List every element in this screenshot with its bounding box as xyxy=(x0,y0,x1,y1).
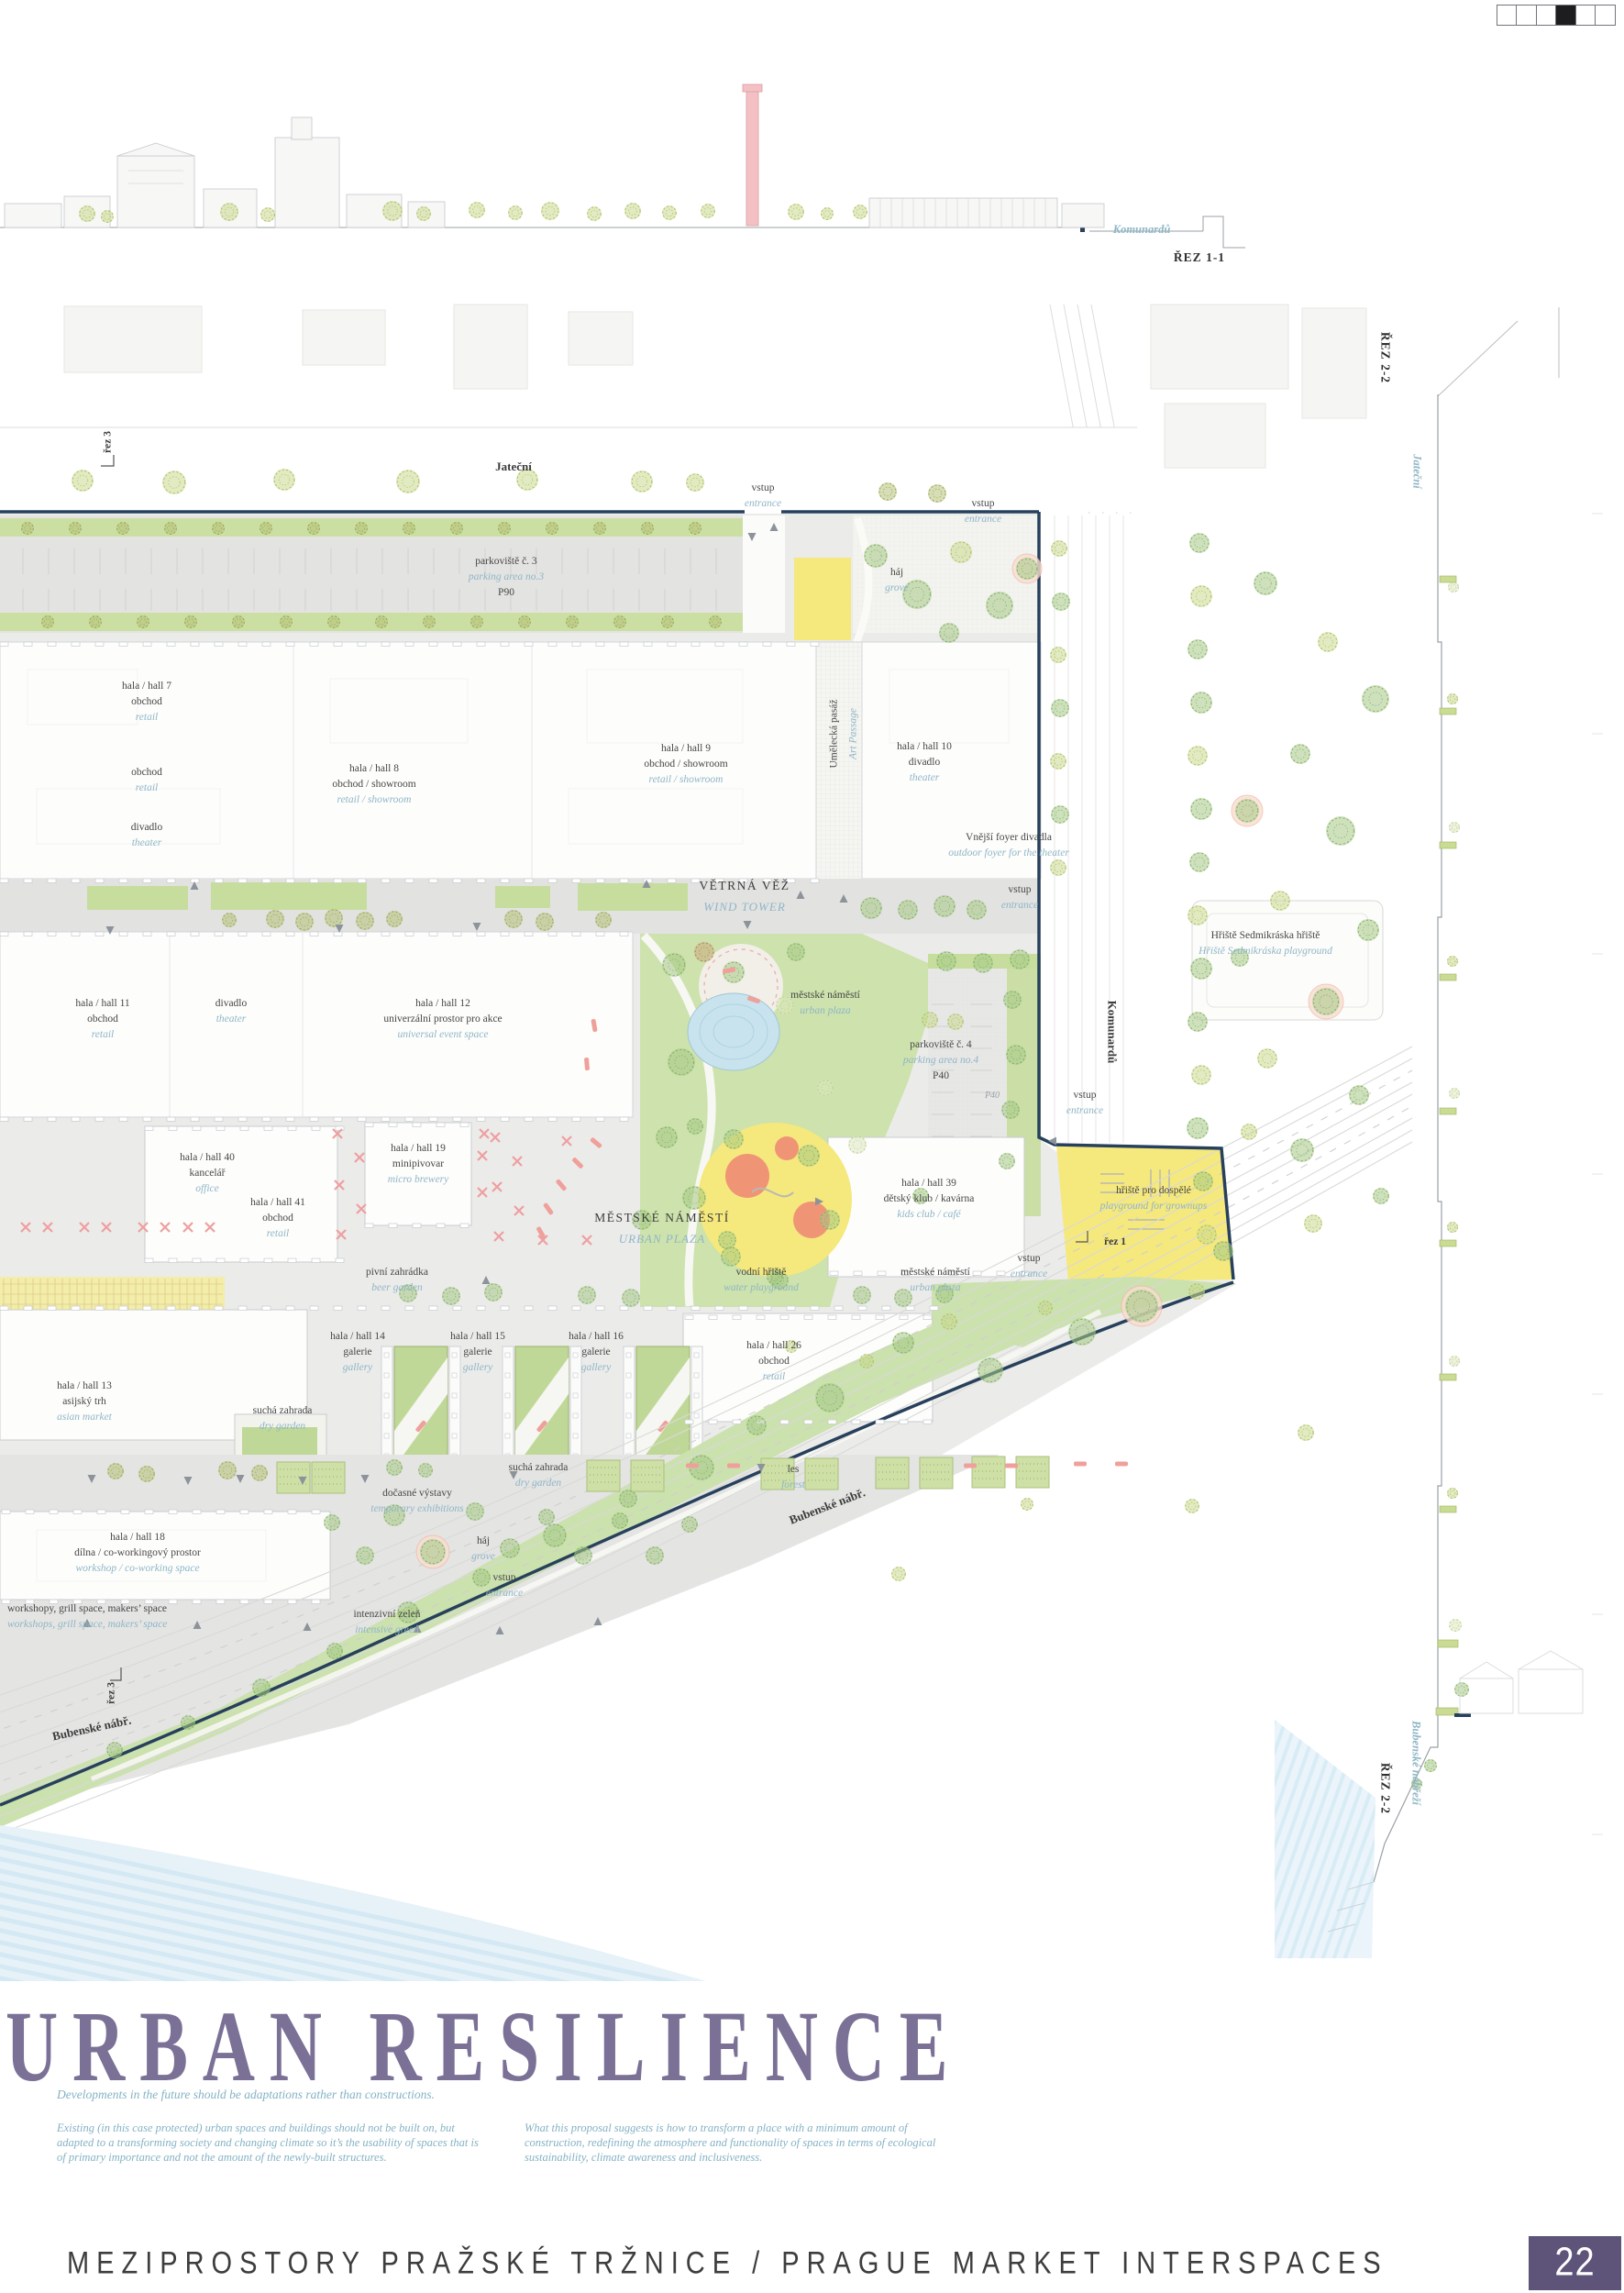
footer-project-title: MEZIPROSTORY PRAŽSKÉ TRŽNICE / PRAGUE MA… xyxy=(67,2246,1388,2282)
page-number-badge: 22 xyxy=(1529,2236,1621,2290)
page-marker-square xyxy=(1595,5,1616,26)
page-marker xyxy=(1497,5,1616,26)
masterplan-drawing xyxy=(0,0,1624,2293)
page-marker-square xyxy=(1497,5,1518,26)
description-column-2: What this proposal suggests is how to tr… xyxy=(525,2121,946,2165)
description-column-1: Existing (in this case protected) urban … xyxy=(57,2121,483,2165)
page-marker-square xyxy=(1575,5,1596,26)
section-1-1-drawing xyxy=(0,84,1245,248)
page-marker-square xyxy=(1516,5,1537,26)
title-subtitle: Developments in the future should be ada… xyxy=(57,2088,699,2102)
site-plan-base xyxy=(0,201,1469,2170)
page-marker-square xyxy=(1555,5,1576,26)
page-marker-square xyxy=(1536,5,1557,26)
poster-page: KomunardůŘEZ 1-1řez 3Jatečnívstupentranc… xyxy=(0,0,1624,2293)
